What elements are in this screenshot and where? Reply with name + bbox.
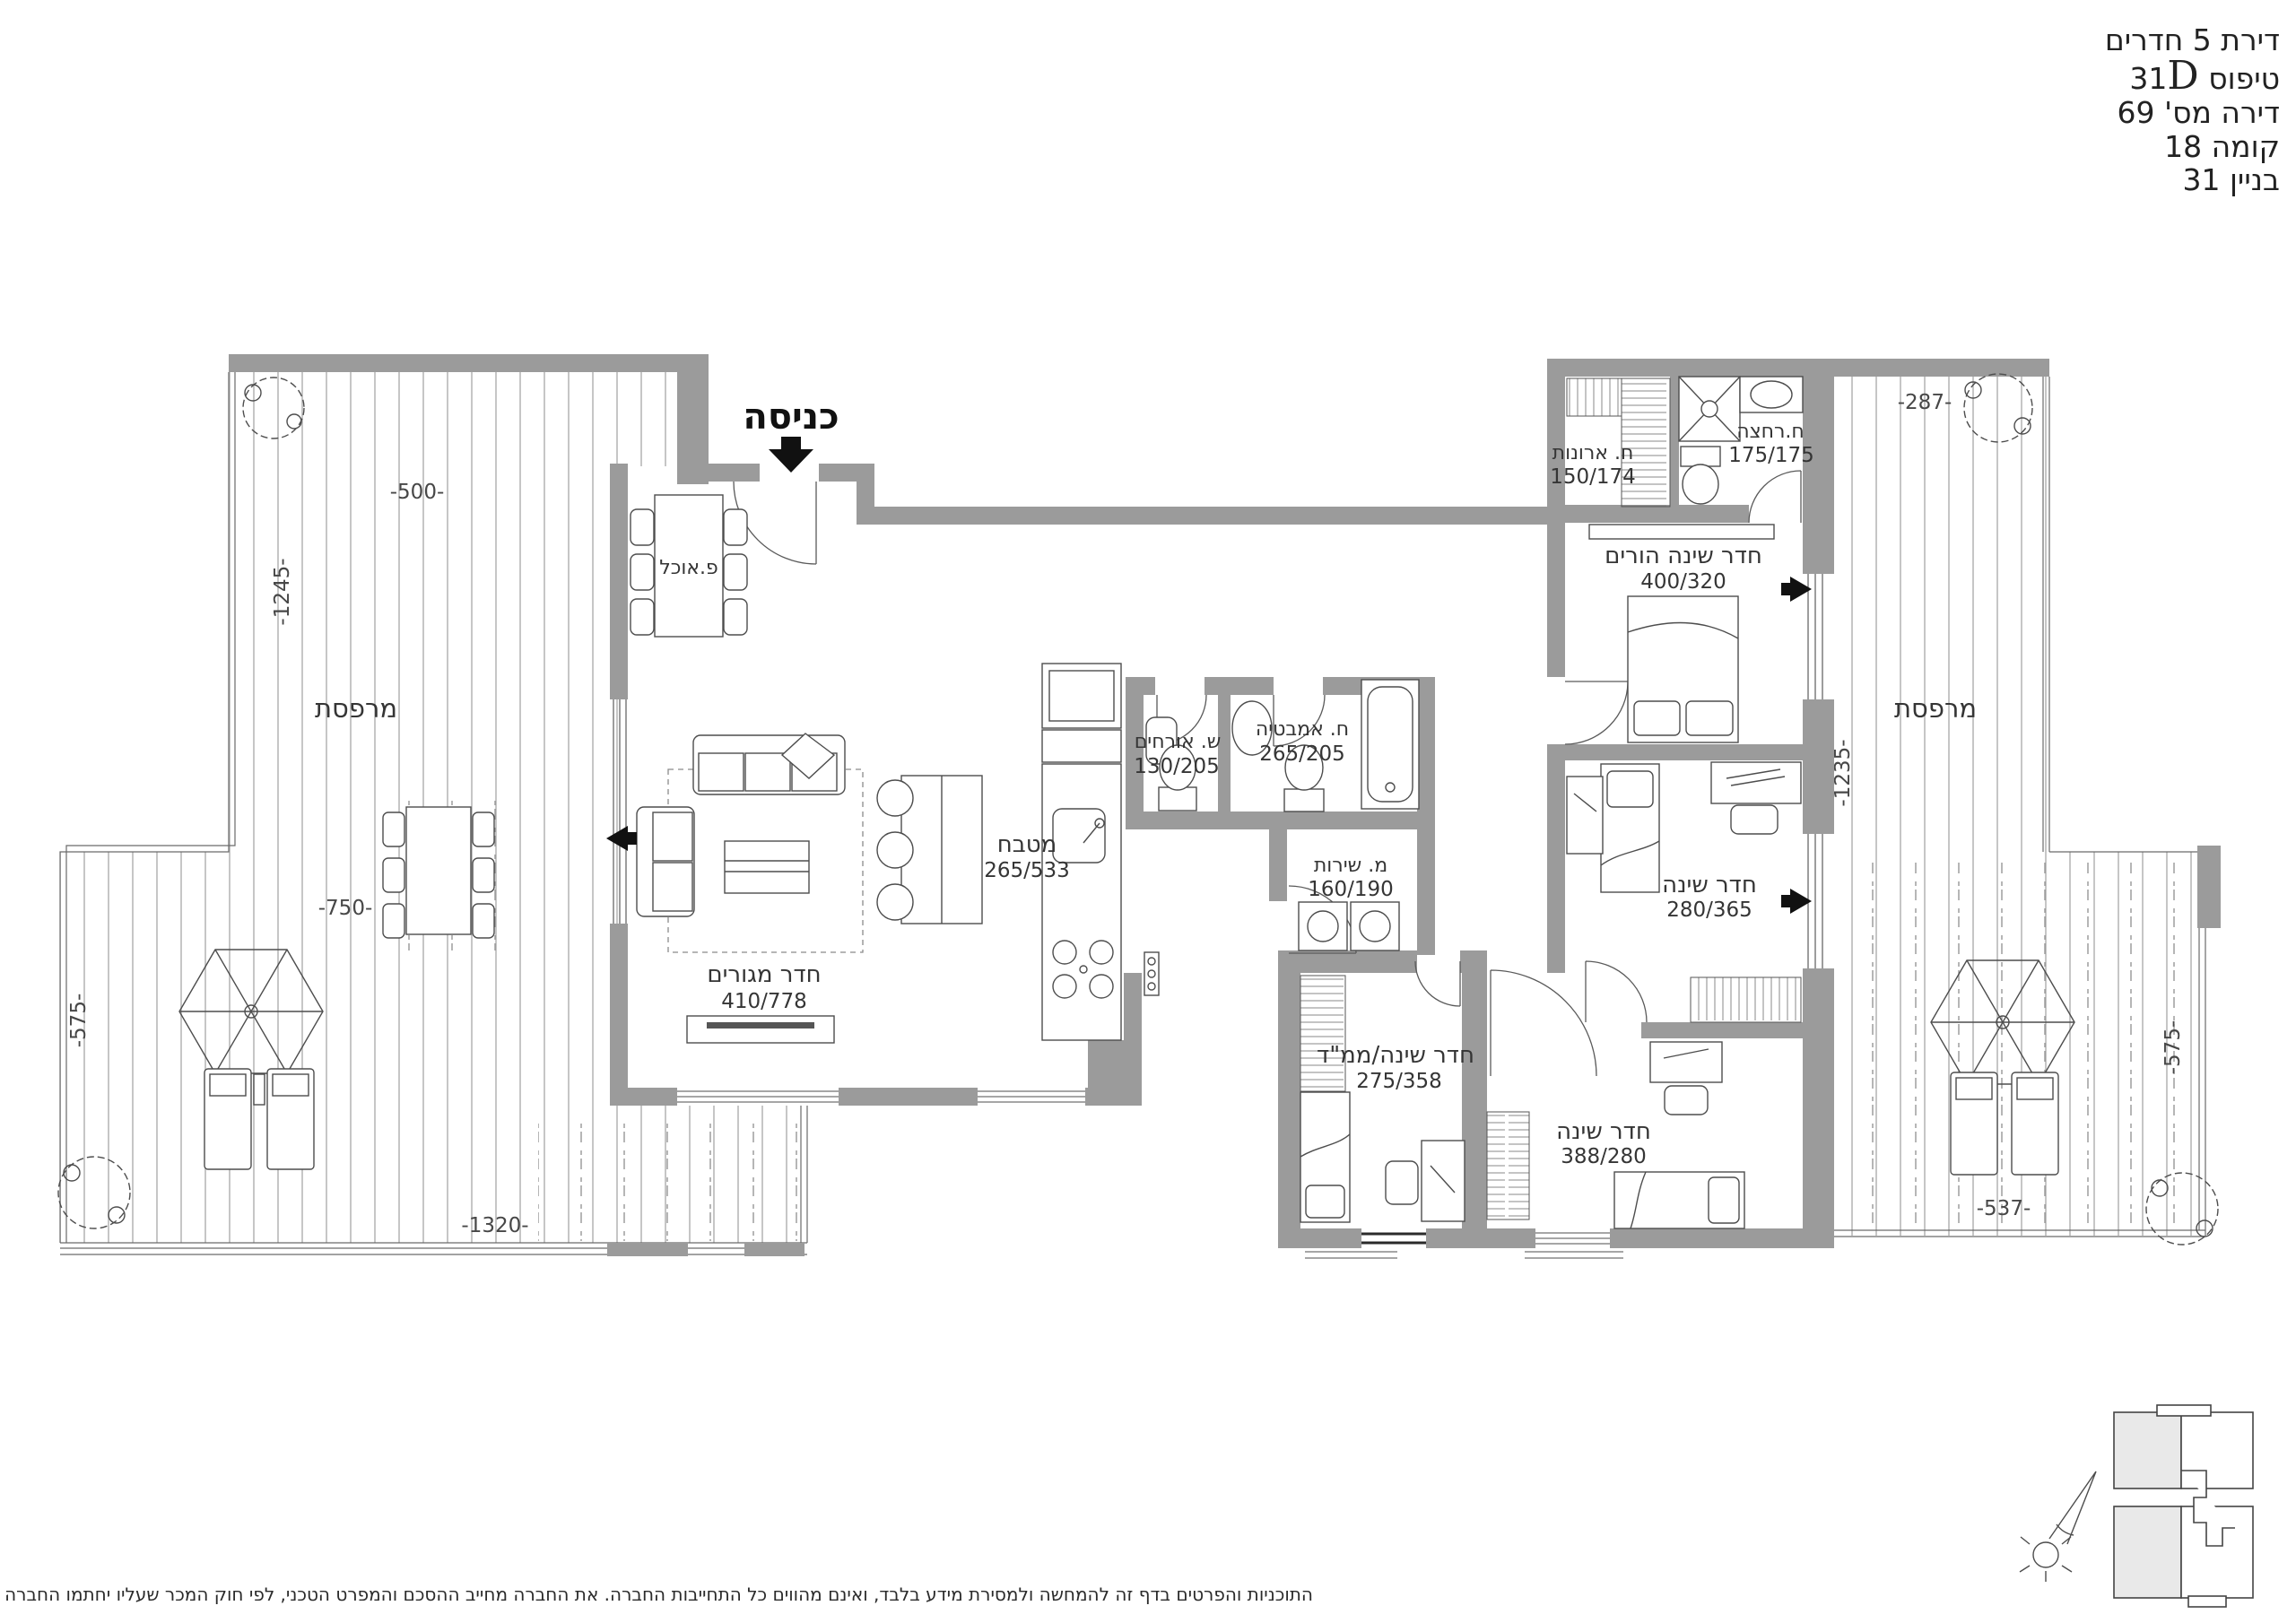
terrace-right: מרפסת -287- -1235- -575- -537- xyxy=(1831,359,2221,1245)
master-bedroom-size: 400/320 xyxy=(1640,570,1726,594)
bedroom-bottom: חדר שינה 388/280 xyxy=(1487,1042,1744,1228)
chair xyxy=(1386,1161,1418,1204)
side-table xyxy=(254,1074,265,1105)
desk xyxy=(1386,1141,1465,1221)
terrace-right-label: מרפסת xyxy=(1894,693,1977,724)
bathroom-label: ח. אמבטיה xyxy=(1256,718,1349,741)
shower-room: ח.רחצה 175/175 xyxy=(1679,377,1814,504)
outdoor-dining-set xyxy=(383,807,494,938)
desk xyxy=(1711,762,1801,834)
kitchen-island xyxy=(877,776,982,924)
hanging-closet xyxy=(1567,378,1622,416)
bedroom-bottom-size: 388/280 xyxy=(1561,1145,1647,1168)
lounger xyxy=(267,1069,314,1169)
closet xyxy=(1487,1112,1529,1219)
chair xyxy=(1665,1086,1708,1115)
dim-right-top: -287- xyxy=(1898,391,1952,414)
master-bedroom: חדר שינה הורים 400/320 xyxy=(1589,525,1774,742)
closet-room-label: ח. ארונות xyxy=(1552,442,1634,464)
mamad-door xyxy=(1415,961,1460,1006)
bedroom-right-label: חדר שינה xyxy=(1662,872,1757,898)
single-bed xyxy=(1601,764,1659,892)
coffee-table xyxy=(725,841,809,893)
chair xyxy=(1731,805,1778,834)
shower-room-label: ח.רחצה xyxy=(1736,421,1805,443)
dining-label: פ.אוכל xyxy=(659,557,718,579)
lounger xyxy=(1951,1072,1997,1175)
dim-right-bottom: -537- xyxy=(1977,1197,2031,1220)
disclaimer-text: התוכניות והפרטים בדף זה להמחשה ולמסירת מ… xyxy=(47,1584,1313,1605)
fridge xyxy=(1042,664,1121,728)
sofa xyxy=(693,733,845,794)
title-type-line: טיפוס 31D xyxy=(2105,56,2280,96)
living-label: חדר מגורים xyxy=(707,961,821,988)
closet xyxy=(1300,976,1345,1091)
title-floor: קומה 18 xyxy=(2105,130,2280,163)
shower-room-door xyxy=(1749,471,1801,523)
floor-plan-page: מרפסת -500- -1245- -750- -575- -1320- xyxy=(0,0,2296,1623)
type-letter: D xyxy=(2167,53,2198,99)
north-arrow-icon xyxy=(2049,1471,2096,1544)
sofa-side xyxy=(637,807,694,916)
bedroom-mamad-size: 275/358 xyxy=(1356,1070,1442,1093)
guest-wc: ש. אורחים 130/205 xyxy=(1134,717,1221,811)
bathtub-icon xyxy=(1361,680,1419,809)
bedroom-right-door xyxy=(1586,961,1647,1022)
lounger xyxy=(2012,1072,2058,1175)
kitchen-size: 265/533 xyxy=(984,859,1070,882)
washing-machine xyxy=(1351,902,1399,950)
living-room-furniture: חדר מגורים 410/778 xyxy=(637,733,863,1043)
floor-plan-drawing: מרפסת -500- -1245- -750- -575- -1320- xyxy=(0,0,2296,1623)
exit-arrow-icon xyxy=(1781,577,1812,602)
headboard-shelf xyxy=(1589,525,1774,539)
terrace-left-parapet xyxy=(229,354,709,372)
pillow xyxy=(1634,701,1680,735)
terrace-left-pergola2 xyxy=(538,1117,807,1241)
bedroom-right-size: 280/365 xyxy=(1666,898,1752,922)
dim-left-side: -575- xyxy=(67,994,91,1048)
master-door xyxy=(1565,681,1628,744)
kitchen-label: מטבח xyxy=(997,831,1057,858)
utility-label: מ. שירות xyxy=(1314,855,1387,877)
kitchen-counter xyxy=(1042,764,1121,1040)
dim-left-height: -1245- xyxy=(271,558,294,625)
dim-right-side: -575- xyxy=(2161,1020,2185,1075)
bedroom-mamad-label: חדר שינה/ממ"ד xyxy=(1317,1042,1474,1069)
entrance: כניסה xyxy=(743,396,839,473)
bathroom-size: 265/205 xyxy=(1259,742,1345,766)
terrace-left: מרפסת -500- -1245- -750- -575- -1320- xyxy=(58,354,807,1256)
entrance-label: כניסה xyxy=(743,396,839,438)
closet xyxy=(1691,977,1801,1022)
entrance-arrow-icon xyxy=(769,437,813,473)
pillow xyxy=(1607,771,1653,807)
desk xyxy=(1650,1042,1722,1115)
terrace-right-deck-upper xyxy=(1834,377,2047,852)
bedroom-mamad: חדר שינה/ממ"ד 275/358 xyxy=(1300,976,1474,1222)
guest-wc-size: 130/205 xyxy=(1134,755,1220,778)
bedroom-right: חדר שינה 280/365 xyxy=(1567,762,1801,1022)
pillow xyxy=(1709,1177,1739,1223)
title-apartment-no: דירה מס' 69 xyxy=(2105,96,2280,129)
utility-size: 160/190 xyxy=(1308,878,1394,901)
terrace-left-label: מרפסת xyxy=(315,693,397,724)
lounger xyxy=(204,1069,251,1169)
dim-right-height: -1235- xyxy=(1831,739,1855,806)
sun-icon xyxy=(2020,1537,2072,1582)
single-bed xyxy=(1614,1172,1744,1228)
title-block: דירת 5 חדרים טיפוס 31D דירה מס' 69 קומה … xyxy=(2105,23,2280,196)
shower-room-size: 175/175 xyxy=(1728,444,1814,467)
pillow xyxy=(1306,1185,1344,1218)
title-building: בניין 31 xyxy=(2105,163,2280,196)
wall-cabinet xyxy=(1144,952,1159,995)
guest-wc-label: ש. אורחים xyxy=(1135,731,1222,753)
dim-left-mid: -750- xyxy=(318,897,373,920)
stool xyxy=(877,884,913,920)
dim-left-bottom: -1320- xyxy=(461,1214,528,1237)
single-bed xyxy=(1300,1092,1350,1222)
double-bed xyxy=(1628,596,1738,742)
exit-arrow-icon xyxy=(1781,889,1812,914)
toilet-icon xyxy=(1681,447,1720,504)
bathroom: ח. אמבטיה 265/205 xyxy=(1232,680,1419,811)
dining-set: פ.אוכל xyxy=(631,495,747,637)
washing-machine xyxy=(1299,902,1347,950)
dim-left-top: -500- xyxy=(390,481,445,504)
tv-cabinet xyxy=(687,1016,834,1043)
closet-room-size: 150/174 xyxy=(1550,465,1636,489)
closet-room: ח. ארונות 150/174 xyxy=(1550,378,1670,507)
kitchen: מטבח 265/533 xyxy=(877,664,1159,1040)
bedroom-bottom-door xyxy=(1491,970,1596,1076)
sink xyxy=(1740,377,1803,412)
stool xyxy=(877,832,913,868)
title-apartment-type: דירת 5 חדרים xyxy=(2105,23,2280,56)
shower-stall xyxy=(1679,377,1740,441)
terrace-right-parapet xyxy=(1834,359,2049,377)
master-bedroom-label: חדר שינה הורים xyxy=(1605,542,1762,569)
key-plan xyxy=(2020,1405,2253,1607)
bedroom-bottom-label: חדר שינה xyxy=(1556,1118,1651,1145)
pillow xyxy=(1686,701,1733,735)
desk-small xyxy=(1567,777,1603,854)
stool xyxy=(877,780,913,816)
terrace-right-pillar xyxy=(2197,846,2221,928)
mamad-window xyxy=(1361,1234,1426,1243)
living-size: 410/778 xyxy=(721,990,807,1013)
utility-room: מ. שירות 160/190 xyxy=(1299,855,1399,950)
